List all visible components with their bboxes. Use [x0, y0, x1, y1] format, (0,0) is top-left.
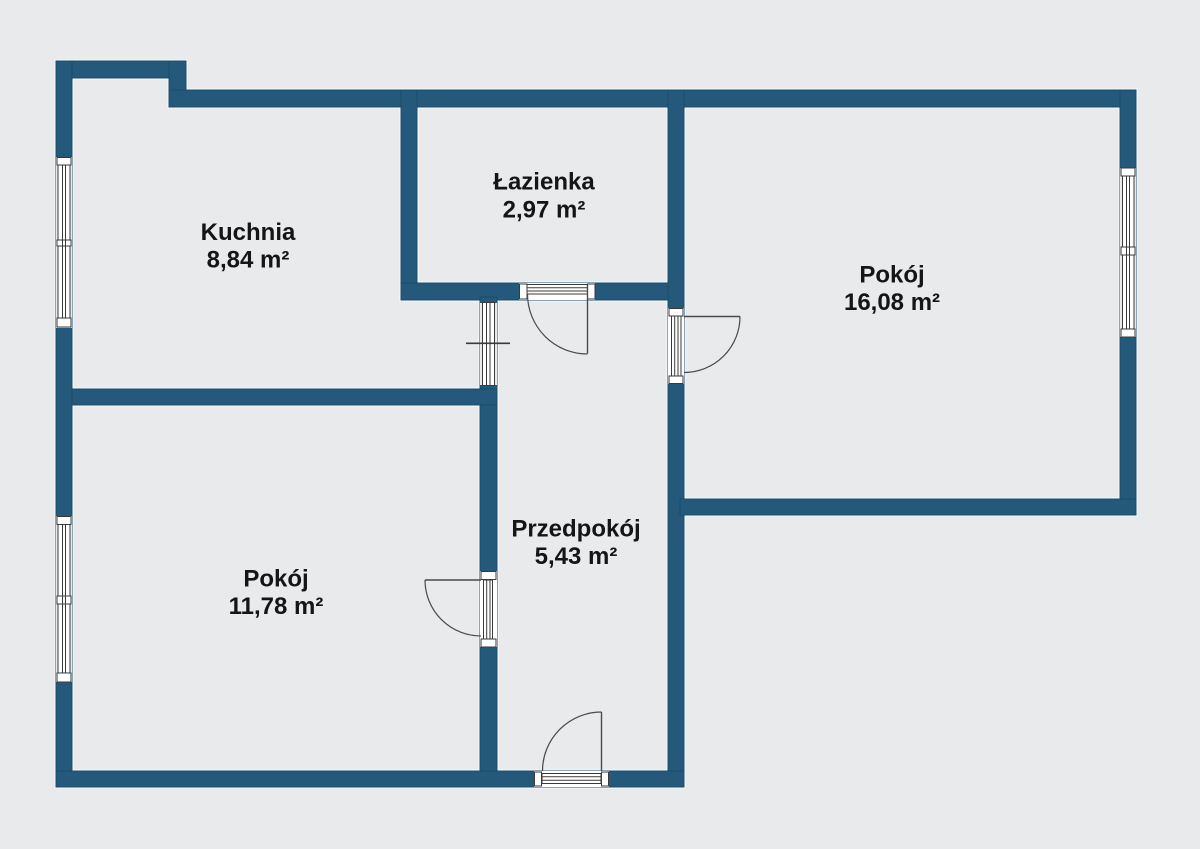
- svg-text:5,43 m²: 5,43 m²: [535, 543, 618, 570]
- svg-text:Przedpokój: Przedpokój: [511, 516, 640, 543]
- svg-text:2,97 m²: 2,97 m²: [503, 197, 586, 224]
- svg-text:16,08 m²: 16,08 m²: [844, 289, 940, 316]
- svg-text:11,78 m²: 11,78 m²: [229, 593, 324, 620]
- svg-text:Kuchnia: Kuchnia: [201, 219, 296, 246]
- svg-text:Pokój: Pokój: [243, 566, 308, 593]
- svg-text:8,84 m²: 8,84 m²: [207, 247, 290, 274]
- svg-text:Łazienka: Łazienka: [493, 169, 595, 196]
- svg-text:Pokój: Pokój: [859, 262, 924, 289]
